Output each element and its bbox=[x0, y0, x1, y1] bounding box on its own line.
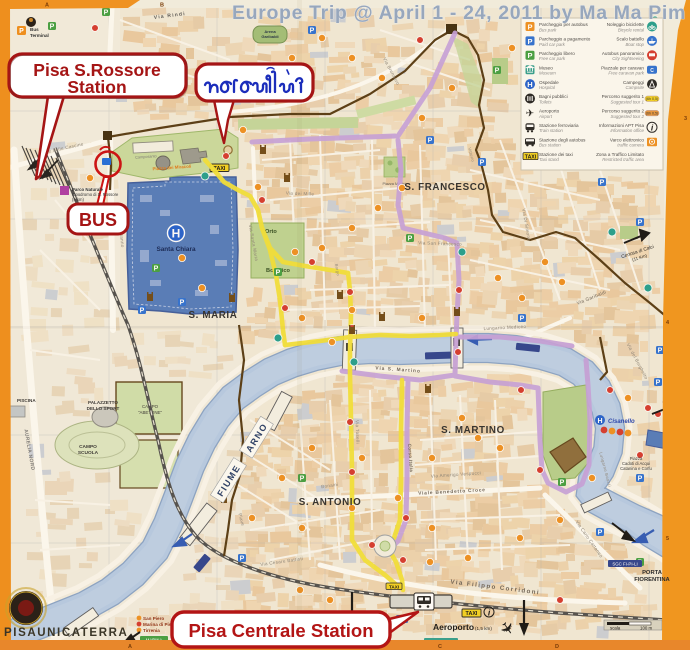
svg-text:3: 3 bbox=[684, 116, 687, 122]
svg-text:P: P bbox=[19, 28, 24, 35]
svg-text:A: A bbox=[128, 644, 132, 650]
svg-text:FIORENTINA: FIORENTINA bbox=[634, 577, 670, 583]
svg-text:(4 km): (4 km) bbox=[72, 197, 84, 202]
svg-text:Terminal: Terminal bbox=[30, 33, 49, 38]
svg-text:C: C bbox=[438, 644, 442, 650]
svg-text:B: B bbox=[160, 3, 164, 9]
svg-text:5: 5 bbox=[666, 536, 669, 542]
svg-text:PORTA: PORTA bbox=[642, 570, 663, 576]
svg-text:Station: Station bbox=[67, 77, 126, 97]
svg-text:A: A bbox=[45, 3, 49, 9]
svg-text:Bus: Bus bbox=[30, 27, 39, 32]
svg-text:PISAUNICATERRA: PISAUNICATERRA bbox=[4, 627, 128, 639]
svg-text:Pisa Centrale Station: Pisa Centrale Station bbox=[188, 620, 373, 641]
svg-text:Europe Trip @ April 1 - 24, 20: Europe Trip @ April 1 - 24, 2011 by Ma M… bbox=[232, 2, 686, 24]
svg-text:BUS: BUS bbox=[79, 210, 117, 230]
svg-text:D: D bbox=[555, 644, 559, 650]
